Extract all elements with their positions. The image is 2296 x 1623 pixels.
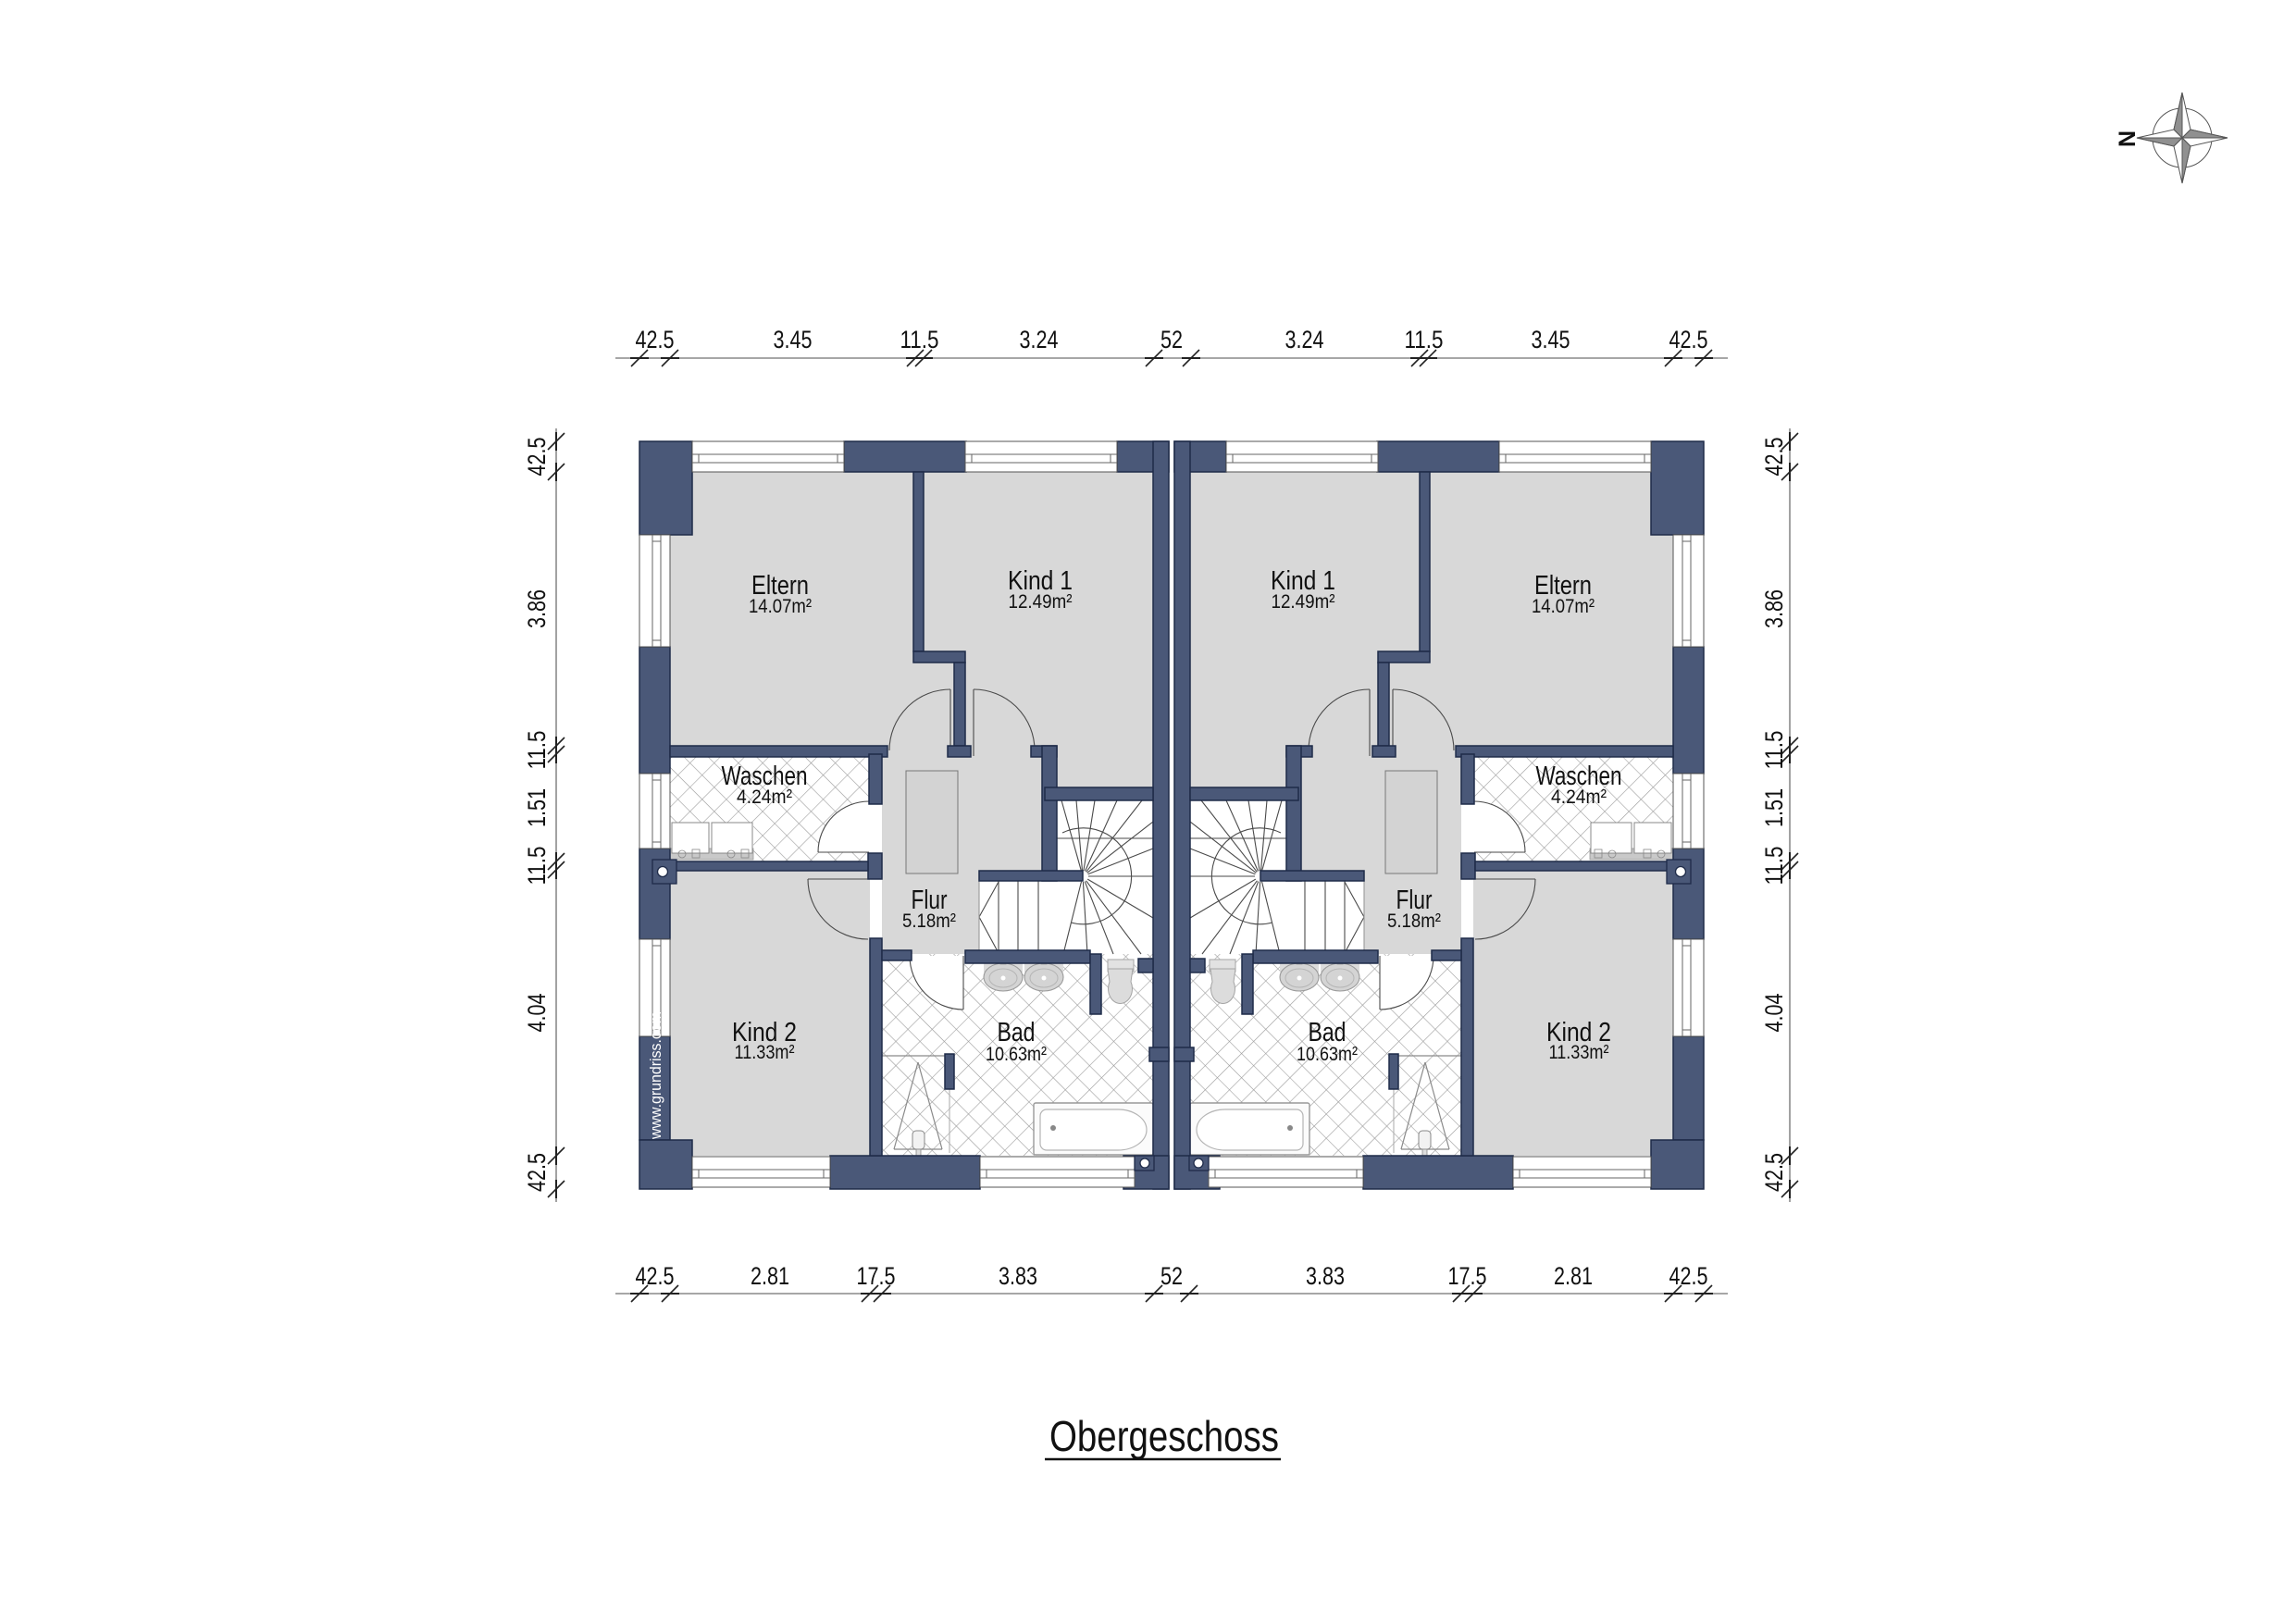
svg-text:3.45: 3.45	[774, 326, 813, 353]
svg-text:3.24: 3.24	[1285, 326, 1324, 353]
svg-text:4.04: 4.04	[1760, 994, 1788, 1033]
svg-text:12.49m²: 12.49m²	[1272, 591, 1335, 613]
svg-text:42.5: 42.5	[1760, 1153, 1788, 1192]
svg-text:42.5: 42.5	[1760, 438, 1788, 477]
svg-text:42.5: 42.5	[1669, 326, 1708, 353]
svg-text:42.5: 42.5	[1669, 1262, 1708, 1290]
svg-text:3.86: 3.86	[1760, 589, 1788, 628]
svg-text:N: N	[2115, 130, 2141, 147]
svg-text:42.5: 42.5	[636, 1262, 675, 1290]
svg-text:11.33m²: 11.33m²	[735, 1042, 795, 1063]
svg-text:10.63m²: 10.63m²	[986, 1044, 1047, 1065]
svg-text:4.24m²: 4.24m²	[1551, 787, 1607, 808]
svg-text:52: 52	[1160, 326, 1183, 353]
svg-text:17.5: 17.5	[857, 1262, 896, 1290]
svg-text:2.81: 2.81	[751, 1262, 789, 1290]
svg-text:14.07m²: 14.07m²	[1532, 596, 1595, 617]
svg-text:3.86: 3.86	[523, 589, 551, 628]
svg-text:3.24: 3.24	[1020, 326, 1059, 353]
svg-text:52: 52	[1160, 1262, 1183, 1290]
svg-text:1.51: 1.51	[1760, 788, 1788, 827]
svg-text:4.04: 4.04	[523, 994, 551, 1033]
svg-text:42.5: 42.5	[636, 326, 675, 353]
svg-text:12.49m²: 12.49m²	[1009, 591, 1073, 613]
svg-text:11.5: 11.5	[1760, 847, 1788, 886]
svg-text:1.51: 1.51	[523, 788, 551, 827]
svg-text:11.5: 11.5	[523, 847, 551, 886]
svg-text:3.83: 3.83	[999, 1262, 1037, 1290]
svg-text:11.33m²: 11.33m²	[1549, 1042, 1609, 1063]
svg-text:Obergeschoss: Obergeschoss	[1049, 1412, 1279, 1460]
svg-text:4.24m²: 4.24m²	[737, 787, 792, 808]
svg-text:17.5: 17.5	[1448, 1262, 1487, 1290]
svg-text:14.07m²: 14.07m²	[749, 596, 812, 617]
svg-text:3.83: 3.83	[1306, 1262, 1345, 1290]
svg-text:11.5: 11.5	[900, 326, 939, 353]
svg-text:5.18m²: 5.18m²	[902, 911, 956, 932]
svg-text:42.5: 42.5	[523, 1153, 551, 1192]
svg-text:42.5: 42.5	[523, 438, 551, 477]
svg-text:11.5: 11.5	[1760, 731, 1788, 770]
svg-text:www.grundriss.com: www.grundriss.com	[647, 1011, 664, 1140]
svg-text:5.18m²: 5.18m²	[1387, 911, 1441, 932]
svg-text:10.63m²: 10.63m²	[1297, 1044, 1358, 1065]
svg-text:11.5: 11.5	[523, 731, 551, 770]
svg-text:3.45: 3.45	[1532, 326, 1570, 353]
svg-text:2.81: 2.81	[1554, 1262, 1593, 1290]
svg-text:11.5: 11.5	[1405, 326, 1444, 353]
